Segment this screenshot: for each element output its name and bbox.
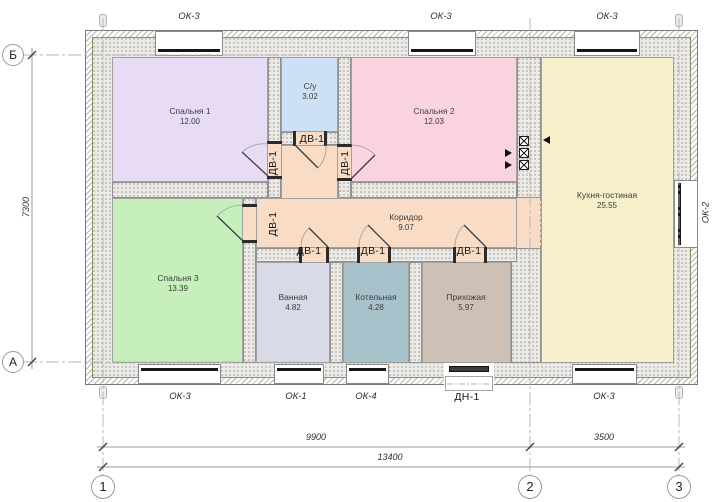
vent-duct-icon <box>519 160 529 170</box>
room-area: 25.55 <box>552 201 662 211</box>
room-name: Спальня 3 <box>123 273 233 284</box>
room-corridor-vertical <box>281 145 338 201</box>
window-tag: ОК-3 <box>577 11 637 22</box>
window-bottom-3 <box>346 364 389 384</box>
door-tag: ДВ-1 <box>267 204 279 244</box>
room-label-bedroom-2: Спальня 2 12.03 <box>379 106 489 127</box>
room-name: Спальня 2 <box>379 106 489 117</box>
room-name: С/у <box>255 81 365 92</box>
room-name: Коридор <box>351 212 461 223</box>
room-label-bedroom-3: Спальня 3 13.39 <box>123 273 233 294</box>
grid-pin <box>675 14 683 27</box>
wall <box>351 182 517 198</box>
room-area: 5.97 <box>411 303 521 313</box>
room-label-kitchen-living: Кухня-гостиная 25.55 <box>552 190 662 211</box>
entry-door-leaf <box>449 366 489 372</box>
glazing <box>158 49 220 52</box>
floor-plan-canvas: Спальня 1 12.00 С/у 3.02 Спальня 2 12.03… <box>0 0 716 502</box>
door-opening-bedroom-3 <box>243 205 256 242</box>
window-tag-right: ОК-2 <box>701 183 712 243</box>
room-label-entry-hall: Прихожая 5.97 <box>411 292 521 313</box>
room-area: 3.02 <box>255 92 365 102</box>
window-tag: ОК-3 <box>411 11 471 22</box>
room-area: 12.03 <box>379 117 489 127</box>
window-bottom-2 <box>274 364 324 384</box>
window-tag: ОК-3 <box>574 391 634 402</box>
axis-bubble-row-top: Б <box>2 44 24 66</box>
door-tag: ДВ-1 <box>339 143 351 183</box>
window-tag: ОК-4 <box>336 391 396 402</box>
glazing <box>575 368 634 371</box>
door-tag: ДВ-1 <box>353 245 393 257</box>
door-tag: ДВ-1 <box>449 245 489 257</box>
vent-duct-icon <box>519 136 529 146</box>
dim-vertical: 7300 <box>21 177 31 237</box>
axis-bubble-col-1: 1 <box>91 475 115 499</box>
dim-span-2-3: 3500 <box>574 432 634 442</box>
room-area: 9.07 <box>351 223 461 233</box>
window-bottom-4 <box>572 364 637 384</box>
window-top-3 <box>574 31 640 56</box>
room-label-bedroom-1: Спальня 1 12.00 <box>135 106 245 127</box>
room-name: Прихожая <box>411 292 521 303</box>
room-label-wc: С/у 3.02 <box>255 81 365 102</box>
window-right <box>674 180 698 248</box>
glazing <box>678 183 681 245</box>
room-label-corridor: Коридор 9.07 <box>351 212 461 233</box>
wall-vent-shaft <box>517 57 541 198</box>
door-tag: ДВ-1 <box>267 143 279 183</box>
window-tag: ОК-1 <box>266 391 326 402</box>
vent-arrow-icon <box>505 161 512 169</box>
door-tag: ДВ-1 <box>292 133 332 145</box>
vent-duct-icon <box>519 148 529 158</box>
vent-arrow-icon <box>543 136 550 144</box>
axis-bubble-col-2: 2 <box>518 475 542 499</box>
grid-pin <box>675 386 683 399</box>
room-area: 12.00 <box>135 117 245 127</box>
glazing <box>141 368 218 371</box>
glazing <box>277 368 321 371</box>
vent-arrow-icon <box>505 149 512 157</box>
glazing <box>577 49 637 52</box>
entry-porch <box>445 376 493 391</box>
window-top-1 <box>155 31 223 56</box>
window-top-2 <box>408 31 476 56</box>
axis-bubble-row-bottom: А <box>2 351 24 373</box>
door-tag: ДВ-1 <box>289 245 329 257</box>
window-tag: ОК-3 <box>150 391 210 402</box>
wall <box>112 182 268 198</box>
room-name: Спальня 1 <box>135 106 245 117</box>
window-bottom-1 <box>138 364 221 384</box>
room-name: Кухня-гостиная <box>552 190 662 201</box>
glazing <box>349 368 386 371</box>
entry-door-tag: ДН-1 <box>447 391 487 403</box>
room-area: 13.39 <box>123 284 233 294</box>
glazing <box>411 49 473 52</box>
dim-span-1-2: 9900 <box>286 432 346 442</box>
grid-pin <box>99 386 107 399</box>
grid-pin <box>99 14 107 27</box>
passage-corridor-kitchen <box>517 198 541 248</box>
dim-total: 13400 <box>360 452 420 462</box>
window-tag: ОК-3 <box>159 11 219 22</box>
axis-bubble-col-3: 3 <box>667 475 691 499</box>
